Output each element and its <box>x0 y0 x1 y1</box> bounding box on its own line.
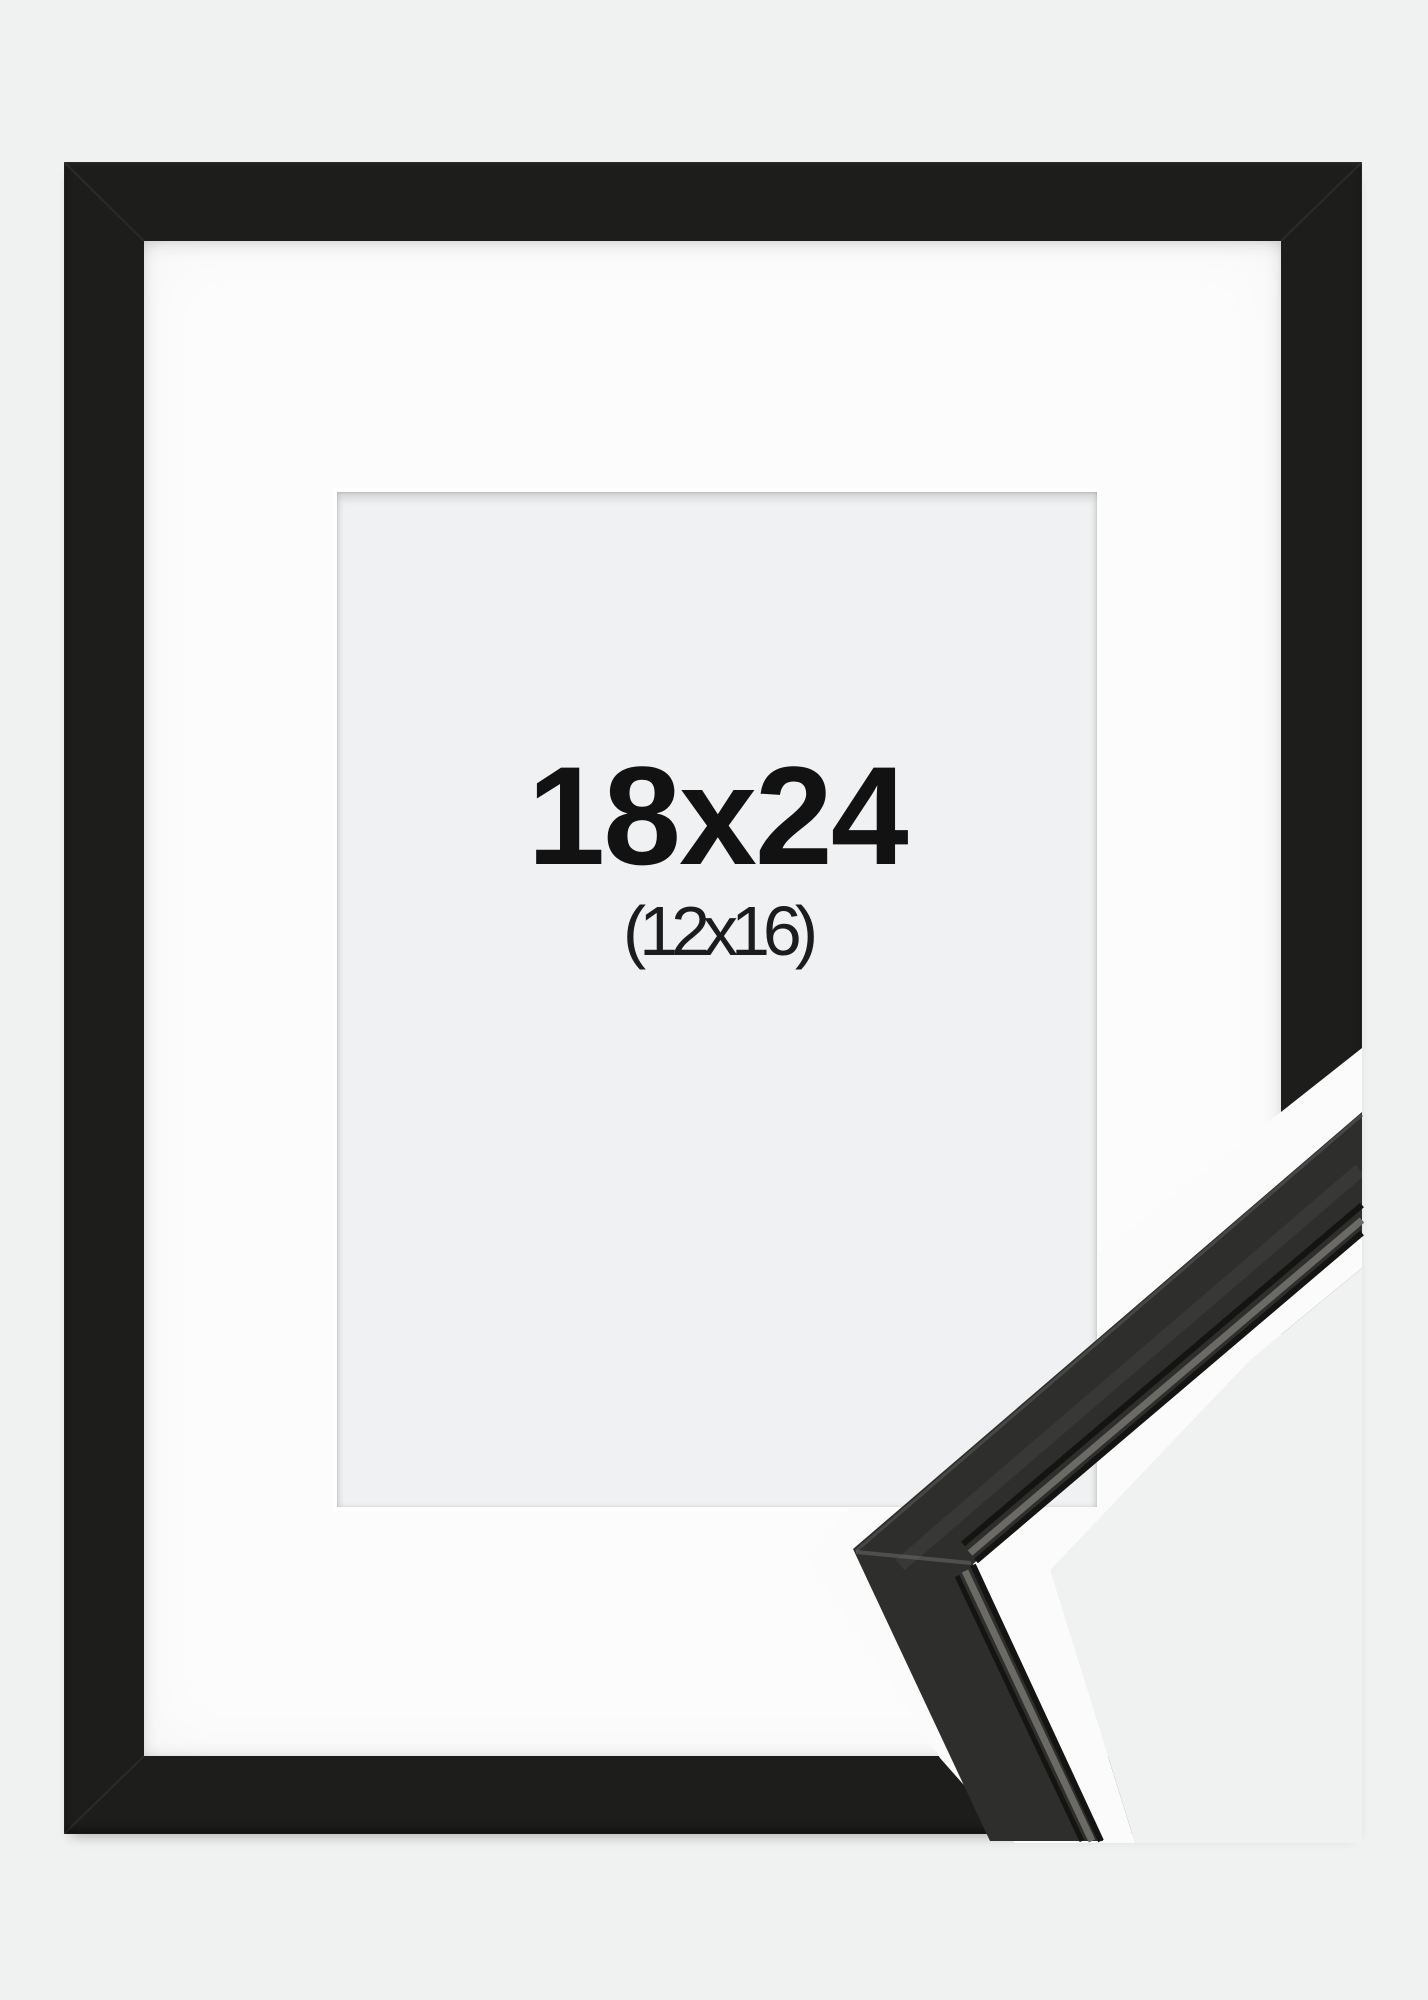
size-label: 18x24 <box>337 746 1097 886</box>
mat-board: 18x24 (12x16) <box>144 241 1281 1756</box>
frame-border: 18x24 (12x16) <box>64 162 1362 1834</box>
mat-window: 18x24 (12x16) <box>337 492 1097 1507</box>
product-image: 18x24 (12x16) <box>0 0 1428 2000</box>
matted-size-label: (12x16) <box>337 896 1097 966</box>
size-labels: 18x24 (12x16) <box>337 746 1097 966</box>
